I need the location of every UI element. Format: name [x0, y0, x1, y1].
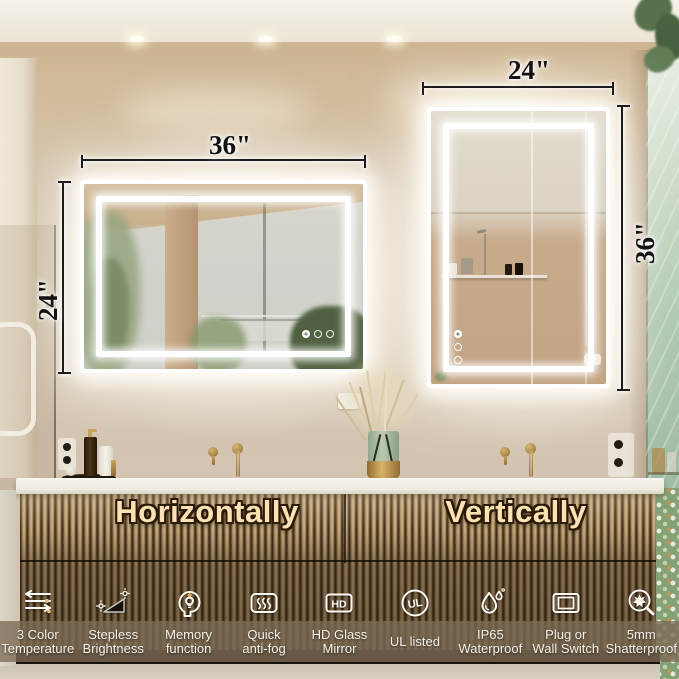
- recessed-light: [387, 36, 402, 42]
- feature-label: Brightness: [82, 642, 143, 657]
- feature-label: Quick: [242, 628, 285, 643]
- waterproof-icon: [472, 582, 508, 620]
- shelf-candle: [667, 452, 676, 472]
- reflection-plant: [435, 372, 447, 381]
- bathroom-product-photo: 36" 24" 24" 36" Horizont: [0, 0, 679, 679]
- stepless-brightness-icon: [95, 582, 131, 620]
- svg-text:UL: UL: [407, 597, 424, 611]
- feature-label: function: [165, 642, 212, 657]
- feature-memory-function: Memoryfunction: [151, 582, 226, 670]
- anti-fog-icon: [246, 582, 282, 620]
- vertical-led-mirror: [427, 107, 610, 388]
- feature-color-temperature: 3 ColorTemperature: [0, 582, 75, 670]
- outlet-socket: [63, 456, 71, 464]
- glass-shelf: [648, 472, 679, 475]
- feature-label: Mirror: [312, 642, 368, 657]
- mirror-touch-button: [454, 330, 462, 338]
- feature-strip: 3 ColorTemperature SteplessBrightness: [0, 582, 679, 670]
- feature-label: Waterproof: [458, 642, 522, 657]
- mirror-touch-button: [314, 330, 322, 338]
- shelf-canister: [652, 448, 665, 474]
- dimension-line-24-top: [423, 86, 613, 88]
- water-stream: [237, 454, 239, 480]
- feature-label: Memory: [165, 628, 212, 643]
- countertop: [16, 478, 664, 494]
- feature-label: Shatterproof: [605, 642, 677, 657]
- water-stream: [530, 454, 532, 480]
- feature-label: anti-fog: [242, 642, 285, 657]
- feature-label: Stepless: [82, 628, 143, 643]
- towel-warmer: [0, 322, 36, 436]
- feature-waterproof: IP65Waterproof: [453, 582, 528, 670]
- amber-bottle: [84, 437, 97, 476]
- dimension-label-24v: 24": [479, 55, 579, 86]
- feature-label: Temperature: [1, 642, 74, 657]
- caption-horizontally: Horizontally: [112, 494, 302, 530]
- outlet-socket: [614, 458, 623, 467]
- mirror-touch-button: [302, 330, 310, 338]
- feature-plug-switch: Plug orWall Switch: [528, 582, 603, 670]
- mirror-touch-button: [454, 356, 462, 364]
- plug-switch-icon: [548, 582, 584, 620]
- feature-label: 3 Color: [1, 628, 74, 643]
- feature-label: IP65: [458, 628, 522, 643]
- feature-anti-fog: Quickanti-fog: [226, 582, 301, 670]
- door-seam: [344, 493, 346, 563]
- recessed-light: [129, 36, 144, 42]
- led-light-frame: [96, 196, 351, 357]
- outlet-socket: [63, 443, 71, 451]
- mirror-touch-button: [326, 330, 334, 338]
- feature-label: Plug or: [532, 628, 599, 643]
- mirror-touch-button: [454, 343, 462, 351]
- gold-accessory: [111, 460, 116, 476]
- faucet-handle-stem: [212, 456, 215, 465]
- vase-gold-base: [367, 461, 400, 479]
- soap: [66, 466, 76, 476]
- feature-label: UL listed: [390, 635, 440, 650]
- outlet-socket: [614, 440, 623, 449]
- feature-shatterproof: 5mmShatterproof: [604, 582, 679, 670]
- hd-glass-icon: HD: [321, 582, 357, 620]
- ul-listed-icon: UL: [397, 582, 433, 620]
- feature-label: 5mm: [605, 628, 677, 643]
- feature-hd-glass: HD HD GlassMirror: [302, 582, 377, 670]
- shatterproof-icon: [623, 582, 659, 620]
- feature-ul-listed: UL UL listed: [377, 582, 452, 670]
- color-temperature-icon: [20, 582, 56, 620]
- dimension-line-36-right: [621, 106, 623, 390]
- svg-text:HD: HD: [332, 599, 348, 611]
- ceiling: [0, 0, 679, 46]
- faucet-handle-stem: [504, 456, 507, 465]
- dimension-label-36: 36": [180, 130, 280, 161]
- caption-vertically: Vertically: [429, 494, 603, 530]
- memory-function-icon: [171, 582, 207, 620]
- dimension-label-36v: 36": [630, 208, 660, 278]
- drawer-seam: [20, 560, 656, 562]
- outlet: [608, 433, 634, 477]
- feature-label: HD Glass: [312, 628, 368, 643]
- recessed-light: [258, 36, 273, 42]
- dimension-label-24: 24": [33, 265, 63, 335]
- feature-stepless-brightness: SteplessBrightness: [75, 582, 150, 670]
- horizontal-led-mirror: [80, 180, 367, 373]
- led-light-frame: [443, 123, 594, 372]
- feature-label: Wall Switch: [532, 642, 599, 657]
